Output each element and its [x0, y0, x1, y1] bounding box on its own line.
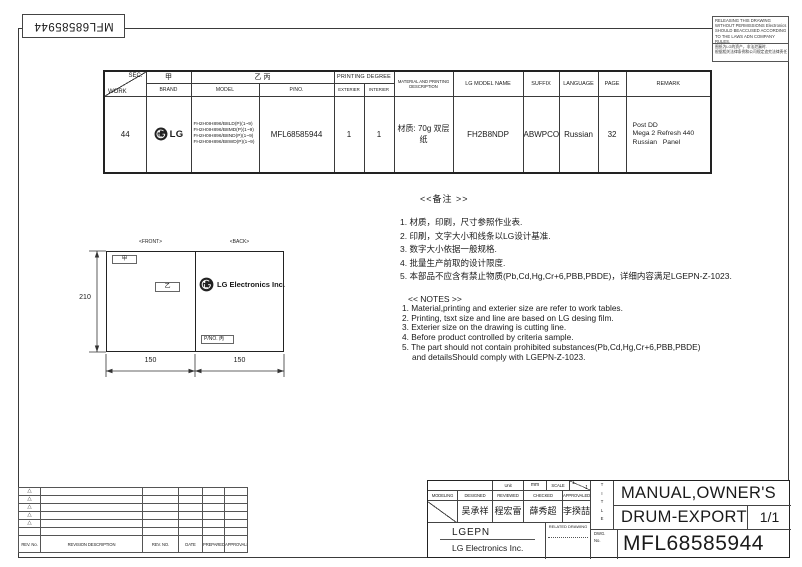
interier-header: INTERIER — [364, 83, 394, 96]
warning-english: RELEASING THIS DRAWING WITHOUT PERMISSIO… — [713, 17, 788, 44]
lg-logo-icon — [154, 127, 168, 141]
exterier-header: EXTERIER — [334, 83, 364, 96]
model-pno-cn-header: 乙 丙 — [191, 71, 334, 83]
doc-title-line1: MANUAL,OWNER'S — [614, 481, 791, 506]
width-dimension-left: 150 — [106, 357, 195, 364]
language-cell: Russian — [559, 96, 598, 173]
blank-cell — [428, 481, 493, 491]
back-label: <BACK> — [195, 239, 284, 245]
front-tag-jia: 甲 — [112, 255, 137, 264]
pno-header: P/NO. — [259, 83, 334, 96]
lg-model-name-cell: FH2B8NDP — [453, 96, 523, 173]
reviewed-name: 程宏雷 — [493, 501, 524, 523]
unit-value-cell: mm — [524, 481, 547, 491]
back-company-text: LG Electronics Inc. — [217, 280, 285, 289]
revision-triangle-icon: △ — [19, 504, 41, 512]
revision-triangle-icon: △ — [19, 512, 41, 520]
revision-description-header: REVISION DESCRIPTION — [41, 536, 143, 553]
company-code: LGEPN — [428, 523, 545, 539]
checked-name: 薛秀超 — [524, 501, 563, 523]
approvaled-label: APPROVALED — [563, 491, 591, 501]
note-cn-item: 2. 印刷，文字大小和线条以LG设计基准. — [400, 230, 735, 244]
company-cell: LGEPN LG Electronics Inc. — [428, 523, 546, 559]
revision-triangle-icon: △ — [19, 496, 41, 504]
remark-header: REMARK — [626, 71, 711, 96]
note-en-item: and detailsShould comply with LGEPN-Z-10… — [412, 353, 752, 363]
note-cn-item: 4. 批量生产前取的设计限度. — [400, 257, 735, 271]
warning-chinese: 图纸为LG的资产，非法泄漏时. 根据相关法律条例和公司规定追究法律责任 — [713, 44, 788, 57]
prepared-header: PREPARED — [203, 536, 225, 553]
remark-cell: Post DD Mega 2 Refresh 440 Russian Panel — [626, 96, 711, 173]
front-tag-yi: 乙 — [155, 282, 180, 292]
approvaled-header: APPROVALED — [225, 536, 248, 553]
note-cn-item: 5. 本部品不应含有禁止物质(Pb,Cd,Hg,Cr+6,PBB,PBDE)，详… — [400, 270, 735, 284]
model-header: MODEL — [191, 83, 259, 96]
title-block: Unit mm SCALE 1 1 MODELING DESIGNED REVI… — [427, 480, 790, 558]
lg-logo-icon — [199, 277, 214, 292]
page-header: PAGE — [598, 71, 626, 96]
brand-header: BRAND — [146, 83, 191, 96]
brand-text: LG — [170, 129, 184, 140]
model-line: FH2H0IH896/B8WD(P)(1~9) — [194, 140, 259, 146]
revision-triangle-icon: △ — [19, 520, 41, 528]
date-header: DATE — [179, 536, 203, 553]
material-header: MATERIAL AND PRINTING DESCRIPTION — [394, 71, 453, 96]
panel-fold-line — [195, 251, 196, 352]
unit-label-cell: Unit — [493, 481, 524, 491]
brand-cell: LG — [146, 96, 191, 173]
suffix-header: SUFFIX — [523, 71, 559, 96]
checked-label: CHECKED — [524, 491, 563, 501]
pno-cell: MFL68585944 — [259, 96, 334, 173]
exterier-cell: 1 — [334, 96, 364, 173]
doc-title-line2: DRUM-EXPORT — [614, 506, 748, 530]
drawing-sheet: MFL68585944 RELEASING THIS DRAWING WITHO… — [0, 0, 802, 567]
page-cell: 32 — [598, 96, 626, 173]
reviewed-label: REVIEWED — [493, 491, 524, 501]
spec-table: SEC. WORK 甲 乙 丙 PRINTING DEGREE MATERIAL… — [103, 70, 712, 174]
drawing-number: MFL68585944 — [618, 530, 791, 559]
notes-chinese: <<备注 >> 1. 材质，印刷，尺寸参照作业表. 2. 印刷，文字大小和线条以… — [400, 192, 735, 284]
dwg-no-label-cell: DWG. No. — [591, 530, 618, 559]
related-drawing-dotted-line — [548, 537, 588, 538]
height-dimension: 210 — [75, 294, 95, 301]
company-name: LG Electronics Inc. — [428, 540, 545, 553]
work-label: WORK — [108, 89, 127, 95]
modeling-signature-slash — [428, 501, 458, 523]
front-label: <FRONT> — [106, 239, 195, 245]
corner-cell: SEC. WORK — [104, 71, 146, 96]
revision-triangle-icon: △ — [19, 488, 41, 496]
scale-value-cell: 1 1 — [570, 481, 591, 491]
notes-cn-title: <<备注 >> — [420, 192, 735, 205]
material-cell: 材质: 70g 双层纸 — [394, 96, 453, 173]
related-drawing-label: RELATED DRAWING — [546, 523, 590, 531]
title-vertical-strip: T I T L E — [591, 481, 614, 530]
rev-no-header: REV. No. — [19, 536, 41, 553]
language-header: LANGUAGE — [559, 71, 598, 96]
lg-model-name-header: LG MODEL NAME — [453, 71, 523, 96]
back-pno-tag: P/NO. 丙 — [201, 335, 234, 344]
brand-cn-header: 甲 — [146, 71, 191, 83]
scale-label-cell: SCALE — [547, 481, 570, 491]
scale-numerator: 1 — [572, 481, 575, 486]
note-cn-item: 1. 材质，印刷，尺寸参照作业表. — [400, 216, 735, 230]
designed-name: 吴承祥 — [458, 501, 493, 523]
notes-english: << NOTES >> 1. Material,printing and ext… — [402, 294, 752, 362]
modeling-label: MODELING — [428, 491, 458, 501]
note-cn-item: 3. 数字大小依据一般规格. — [400, 243, 735, 257]
back-logo: LG Electronics Inc. — [199, 277, 285, 292]
part-number-rotated: MFL68585944 — [34, 20, 114, 32]
sheet-number: 1/1 — [748, 506, 791, 530]
rev-no2-header: REV. NO. — [143, 536, 179, 553]
width-dimension-right: 150 — [195, 357, 284, 364]
interier-cell: 1 — [364, 96, 394, 173]
panel-diagram: <FRONT> <BACK> 甲 乙 LG Electronics Inc. P… — [75, 238, 325, 383]
revision-table: △ △ △ △ △ REV. No. REVISION DESCRIPTION … — [18, 487, 248, 553]
part-number-box: MFL68585944 — [22, 14, 125, 38]
sec-label: SEC. — [128, 73, 142, 79]
models-cell: FH2H0IH896/B8LD(P)(1~9) FH2H0IH896/B8MD(… — [191, 96, 259, 173]
suffix-cell: ABWPCOM — [523, 96, 559, 173]
warning-box: RELEASING THIS DRAWING WITHOUT PERMISSIO… — [712, 16, 789, 62]
related-drawing-cell: RELATED DRAWING — [546, 523, 591, 559]
designed-label: DESIGNED — [458, 491, 493, 501]
approvaled-name: 李揆喆 — [563, 501, 591, 523]
printing-degree-header: PRINTING DEGREE — [334, 71, 394, 83]
work-cell: 44 — [104, 96, 146, 173]
